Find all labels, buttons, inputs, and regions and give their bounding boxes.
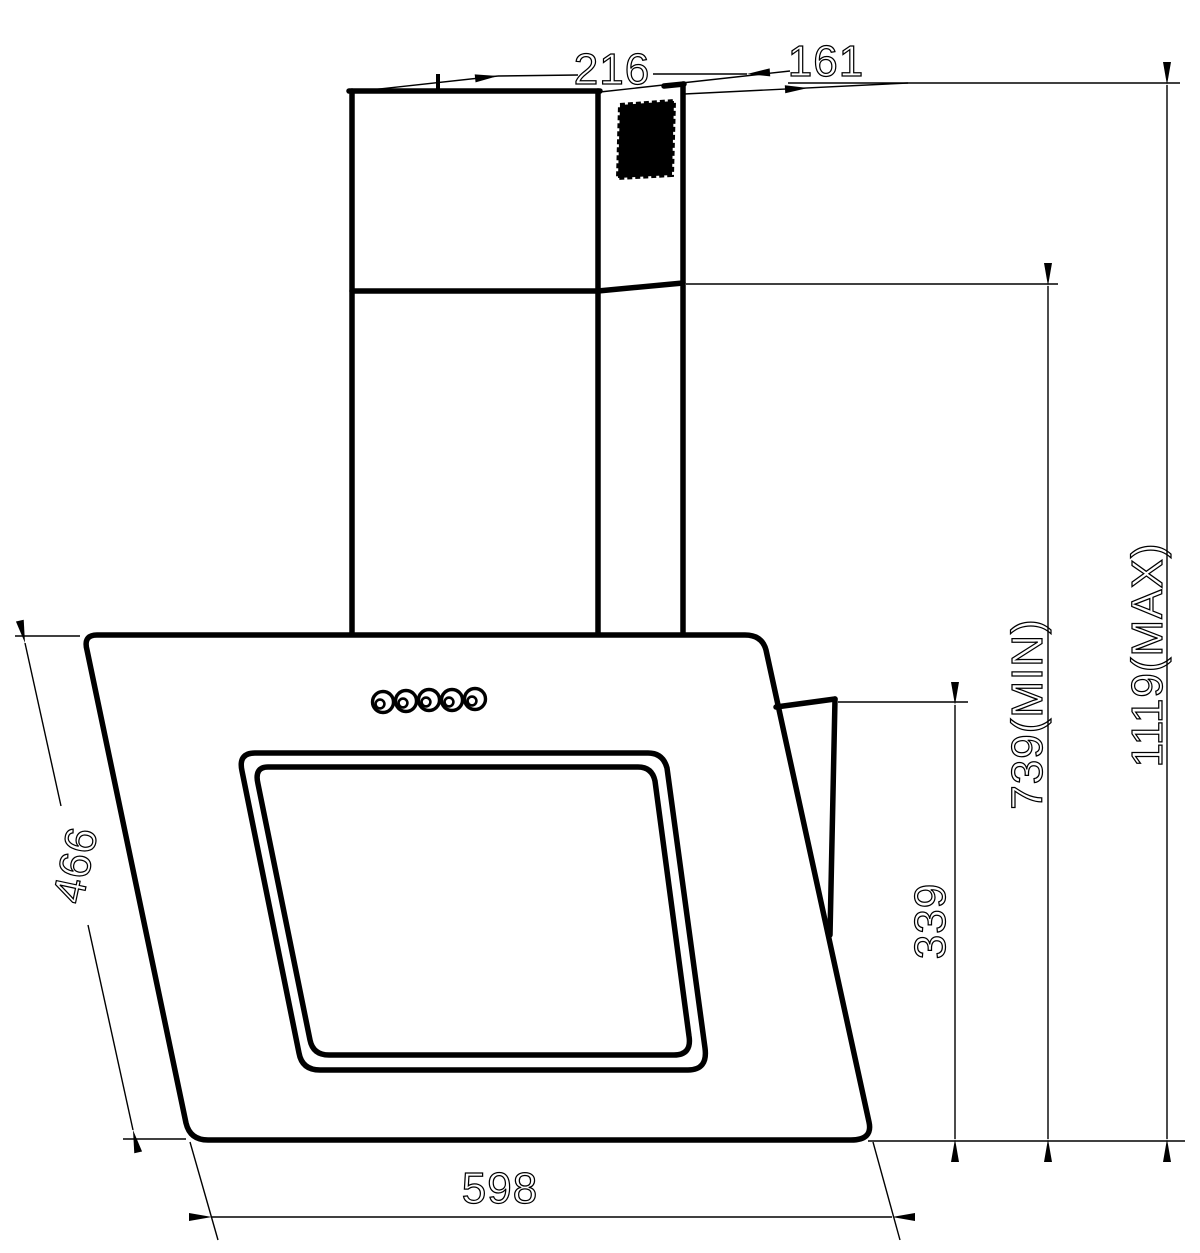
dim-598-arrow-left	[189, 1213, 212, 1221]
dim-216-line-left	[498, 75, 578, 76]
dim-339-arrow-bottom	[951, 1139, 959, 1162]
dim-598: 598	[189, 1142, 915, 1240]
dim-598-extension-left	[190, 1142, 218, 1240]
technical-drawing-canvas: 216 161 1119(MAX) 739(MIN)	[0, 0, 1200, 1253]
dim-216-label: 216	[574, 45, 650, 94]
dim-339-label: 339	[906, 883, 955, 959]
dim-339: 339	[906, 682, 959, 1162]
dim-1119-label: 1119(MAX)	[1123, 542, 1172, 767]
dim-466-arrow-bottom	[129, 1129, 142, 1153]
dim-466-line-upper	[25, 643, 61, 806]
dim-739-label: 739(MIN)	[1003, 618, 1052, 809]
dim-161: 161	[684, 37, 908, 94]
control-knobs	[373, 689, 486, 713]
dim-216: 216	[352, 45, 790, 94]
dim-598-label: 598	[462, 1164, 538, 1213]
control-knob	[442, 690, 463, 711]
dim-466-line-lower	[88, 925, 133, 1130]
dim-739-arrow-bottom	[1044, 1139, 1052, 1162]
dim-466-label: 466	[44, 823, 108, 908]
dim-466-arrow-top	[16, 620, 29, 644]
control-knob	[396, 691, 417, 712]
dim-216-arrow-left	[475, 72, 499, 82]
control-knob	[465, 689, 486, 710]
dim-1119-arrow-top	[1163, 62, 1171, 85]
dim-216-arrow-right	[747, 68, 771, 78]
body-fills	[86, 84, 870, 1140]
control-knob	[419, 690, 440, 711]
dim-1119-max: 1119(MAX)	[1123, 62, 1172, 1162]
dim-1119-arrow-bottom	[1163, 1139, 1171, 1162]
dim-161-label: 161	[788, 37, 864, 86]
dim-739-min: 739(MIN)	[1003, 263, 1052, 1162]
cooker-hood-dimension-drawing: 216 161 1119(MAX) 739(MIN)	[0, 0, 1200, 1253]
dim-598-arrow-right	[892, 1213, 915, 1221]
control-knob	[373, 692, 394, 713]
chimney-front-fill	[352, 91, 598, 635]
vent-grille	[618, 101, 674, 178]
dim-739-arrow-top	[1044, 263, 1052, 286]
dim-598-extension-right	[873, 1142, 900, 1240]
